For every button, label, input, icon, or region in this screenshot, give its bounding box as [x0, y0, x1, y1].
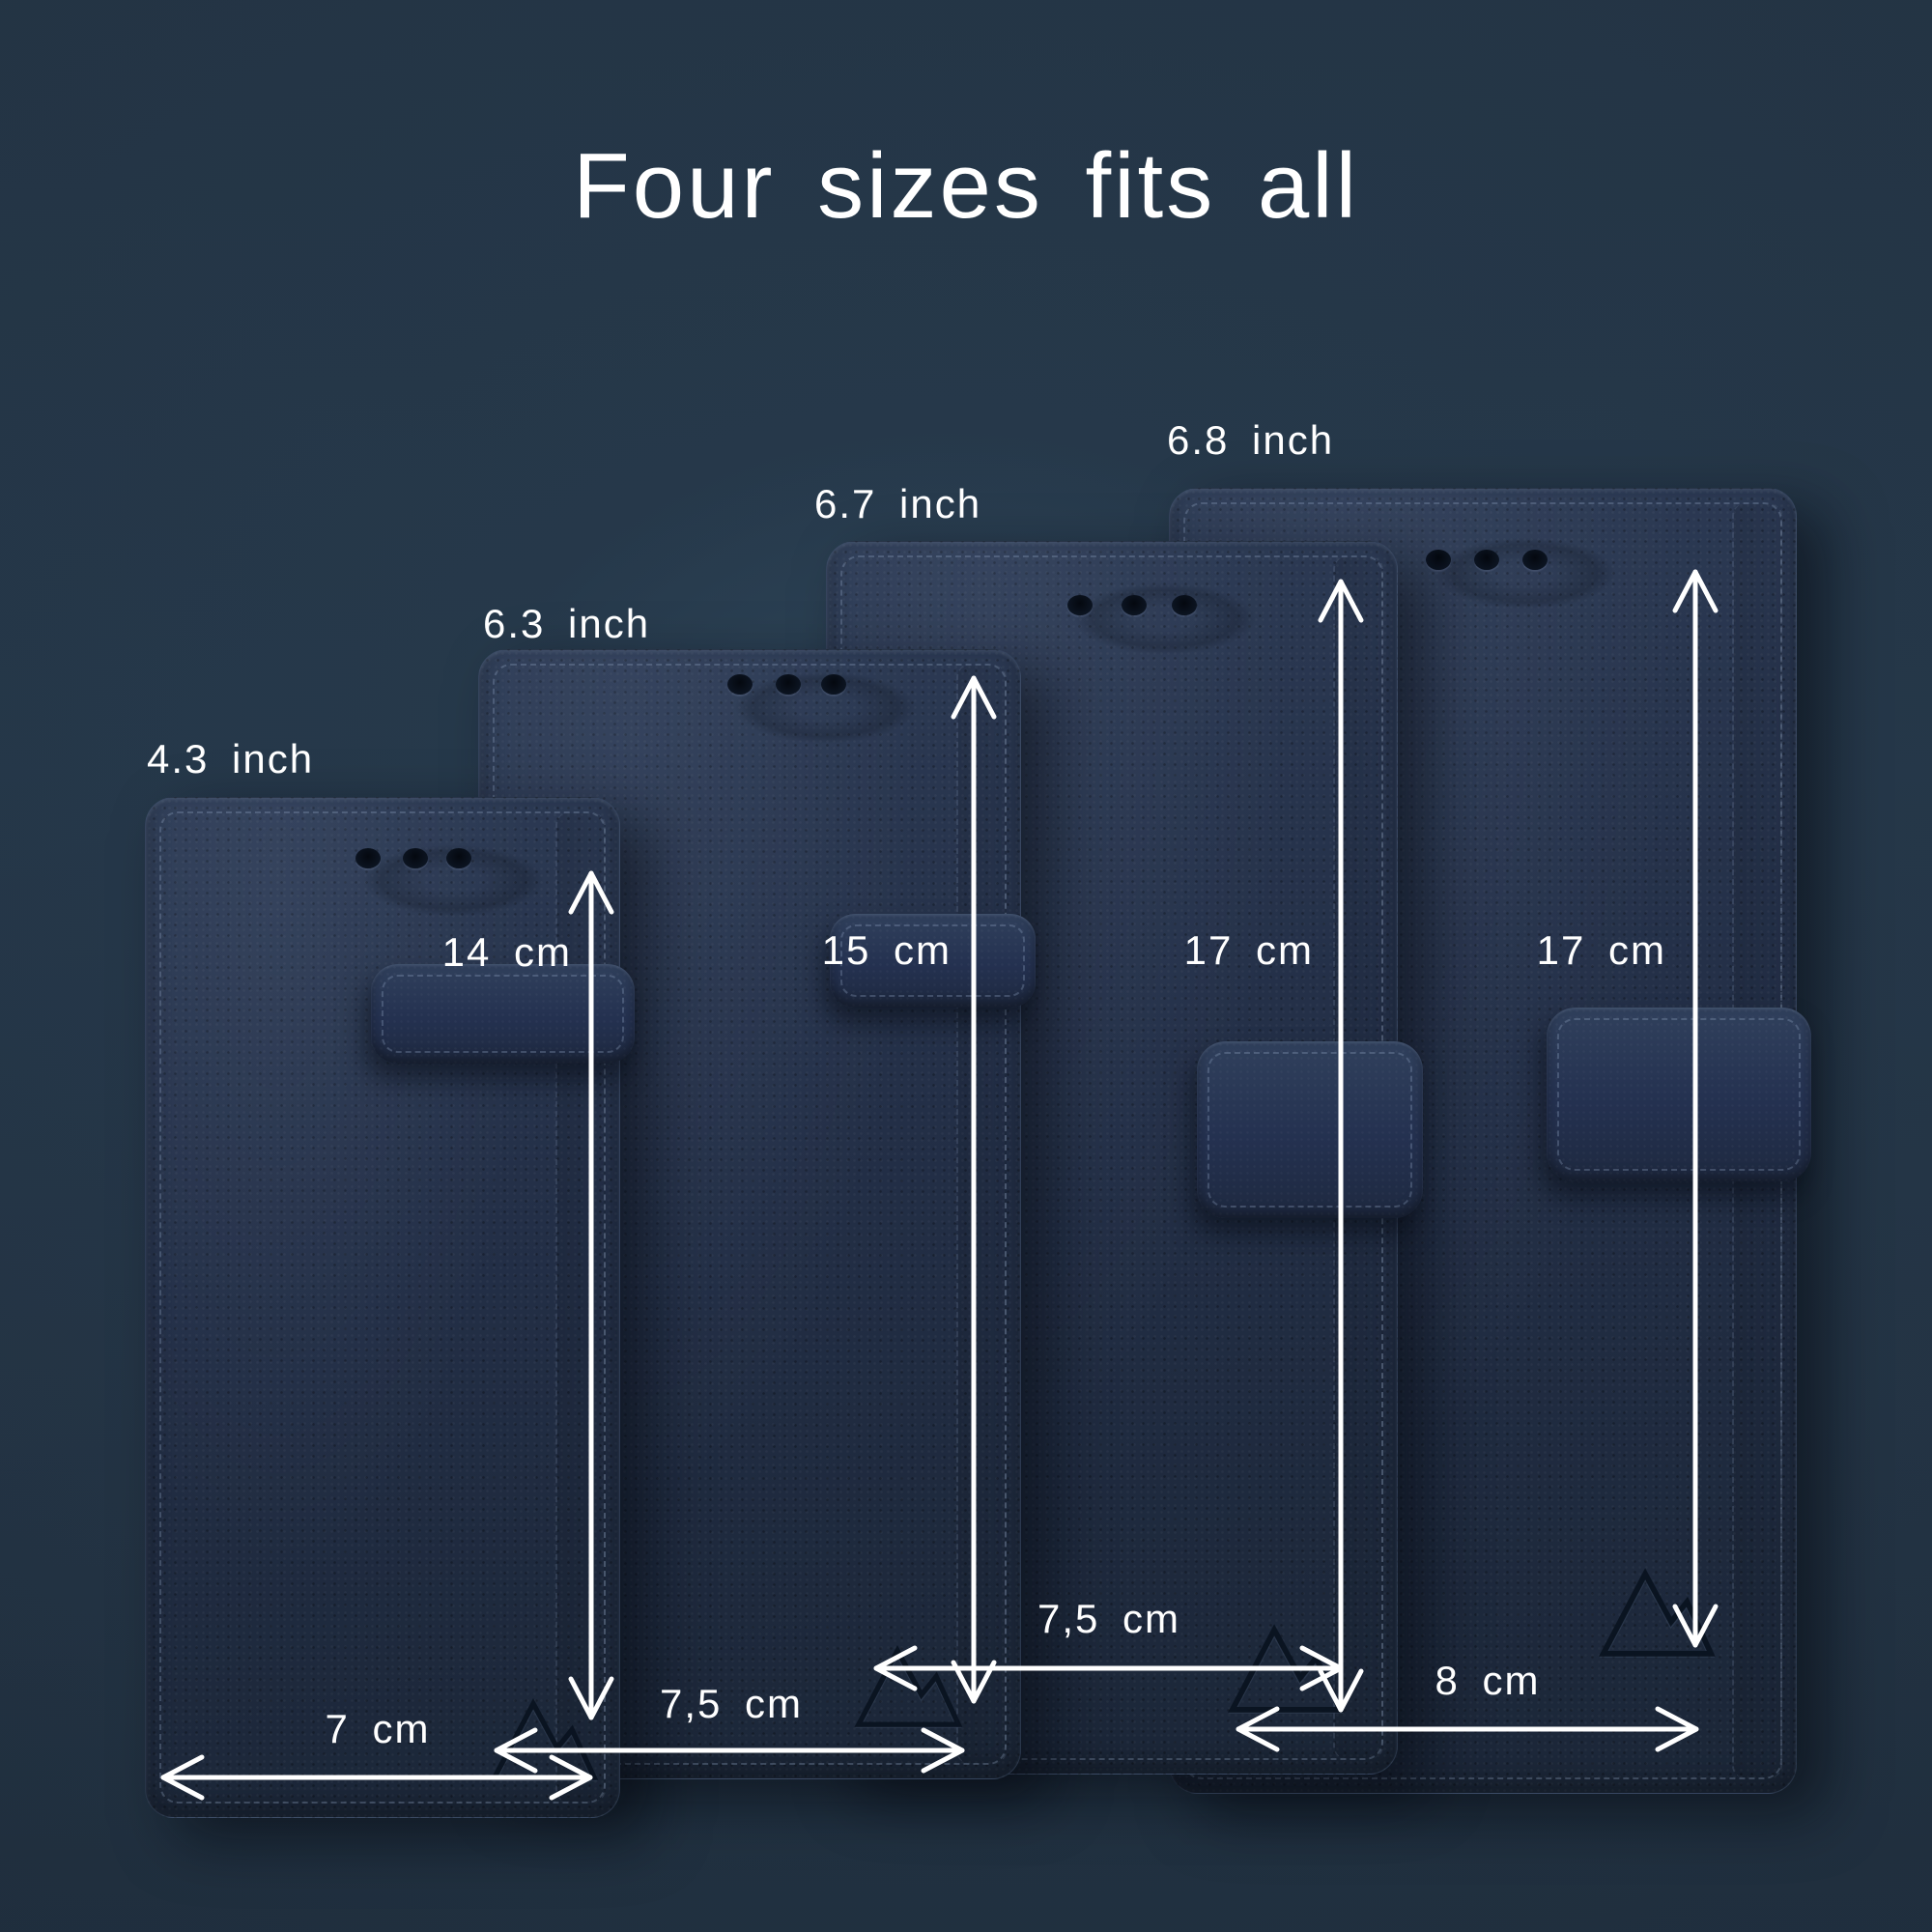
width-arrow-case-4 [1238, 1709, 1696, 1749]
size-label-case-1: 4.3 inch [147, 736, 314, 782]
height-arrow-case-4 [1675, 572, 1716, 1645]
size-label-case-3: 6.7 inch [814, 481, 981, 527]
product-size-diagram: Four sizes fits all [0, 0, 1932, 1932]
width-value-case-1: 7 cm [325, 1706, 430, 1752]
height-value-case-2: 15 cm [822, 927, 952, 974]
height-value-case-1: 14 cm [442, 929, 572, 976]
height-arrow-case-2 [953, 678, 994, 1701]
width-value-case-3: 7,5 cm [1037, 1596, 1180, 1642]
height-arrow-case-3 [1321, 582, 1361, 1710]
width-value-case-2: 7,5 cm [660, 1681, 803, 1727]
height-value-case-4: 17 cm [1537, 927, 1666, 974]
size-label-case-4: 6.8 inch [1167, 417, 1334, 464]
height-arrow-case-1 [571, 873, 611, 1718]
width-value-case-4: 8 cm [1435, 1658, 1540, 1704]
height-value-case-3: 17 cm [1184, 927, 1314, 974]
size-label-case-2: 6.3 inch [483, 601, 650, 647]
width-arrow-case-3 [876, 1648, 1341, 1689]
